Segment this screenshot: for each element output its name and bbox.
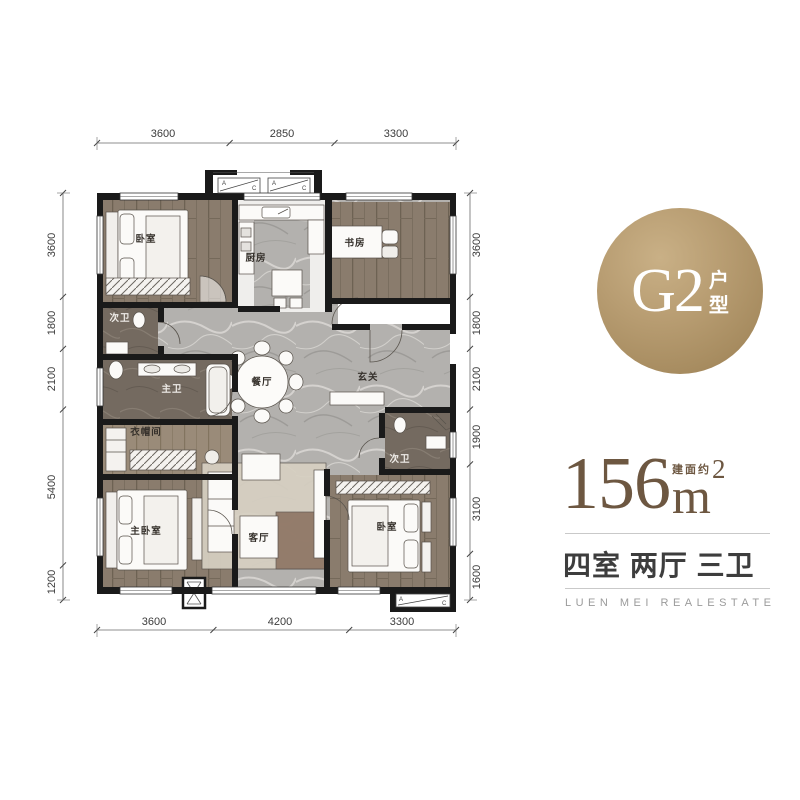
wardrobe-hatch-tl bbox=[106, 278, 190, 295]
ac-label-a3: A bbox=[399, 597, 403, 603]
ac-unit-bottom: A C bbox=[396, 594, 450, 607]
divider-bottom bbox=[565, 588, 770, 589]
unit-suffix: 户 型 bbox=[709, 269, 729, 319]
area-block: 156 建面约 m 2 bbox=[562, 452, 776, 517]
dim-bottom-1: 3600 bbox=[142, 616, 166, 628]
unit-code: G2 bbox=[631, 260, 703, 322]
dim-left-5: 1200 bbox=[46, 570, 58, 594]
dim-right-4: 1900 bbox=[471, 425, 483, 449]
dim-left-2: 1800 bbox=[46, 311, 58, 335]
room-label-study: 书房 bbox=[344, 237, 365, 249]
floor-plan: A C A C A C 卧室 厨房 书房 次卫 主卫 衣帽间 bbox=[40, 120, 490, 660]
room-label-foyer: 玄关 bbox=[357, 371, 378, 383]
ac-label-a1: A bbox=[222, 181, 226, 187]
room-label-bath-right: 次卫 bbox=[389, 453, 410, 465]
dim-right-5: 3100 bbox=[471, 497, 483, 521]
dim-left-4: 5400 bbox=[46, 475, 58, 499]
shoe-cabinet-icon bbox=[330, 392, 384, 405]
area-unit: m bbox=[672, 475, 711, 518]
dim-right-1: 3600 bbox=[471, 233, 483, 257]
dim-top-3: 3300 bbox=[384, 128, 408, 140]
rooms-summary: 四室 两厅 三卫 bbox=[563, 544, 775, 584]
room-label-dining: 餐厅 bbox=[250, 376, 272, 388]
ac-label-c3: C bbox=[442, 601, 447, 607]
unit-type-badge: G2 户 型 bbox=[597, 208, 763, 374]
dim-top-2: 2850 bbox=[270, 128, 294, 140]
room-label-cloakroom: 衣帽间 bbox=[130, 426, 162, 438]
ac-label-c1: C bbox=[252, 186, 257, 192]
area-unit-wrap: 建面约 m bbox=[672, 461, 711, 518]
area-value: 156 bbox=[562, 452, 670, 517]
unit-suffix-char-2: 型 bbox=[709, 294, 729, 319]
area-superscript: 2 bbox=[712, 456, 726, 483]
room-label-kitchen: 厨房 bbox=[245, 252, 266, 264]
room-label-bedroom-br: 卧室 bbox=[376, 521, 397, 533]
ac-unit-top-1: A C bbox=[218, 178, 260, 193]
brand-name: LUEN MEI REALESTATE bbox=[565, 597, 777, 609]
unit-suffix-char-1: 户 bbox=[709, 269, 729, 294]
room-label-living: 客厅 bbox=[247, 532, 269, 544]
dim-right-2: 1800 bbox=[471, 311, 483, 335]
dim-bottom-2: 4200 bbox=[268, 616, 292, 628]
divider-top bbox=[565, 533, 770, 534]
dim-right-6: 1600 bbox=[471, 565, 483, 589]
ac-label-a2: A bbox=[272, 181, 276, 187]
room-label-master-bedroom: 主卧室 bbox=[130, 525, 162, 537]
foyer-notch bbox=[338, 304, 450, 324]
room-label-master-bath: 主卫 bbox=[161, 383, 182, 395]
ac-unit-top-2: A C bbox=[268, 178, 310, 193]
living-room-icons bbox=[202, 450, 326, 569]
dim-left-1: 3600 bbox=[46, 233, 58, 257]
dim-top-1: 3600 bbox=[151, 128, 175, 140]
page: A C A C A C 卧室 厨房 书房 次卫 主卫 衣帽间 bbox=[0, 0, 800, 800]
dim-left-3: 2100 bbox=[46, 367, 58, 391]
dim-right-3: 2100 bbox=[471, 367, 483, 391]
room-label-bedroom-tl: 卧室 bbox=[135, 233, 156, 245]
ac-label-c2: C bbox=[302, 186, 307, 192]
dim-bottom-3: 3300 bbox=[390, 616, 414, 628]
room-label-bath-left: 次卫 bbox=[109, 312, 130, 324]
